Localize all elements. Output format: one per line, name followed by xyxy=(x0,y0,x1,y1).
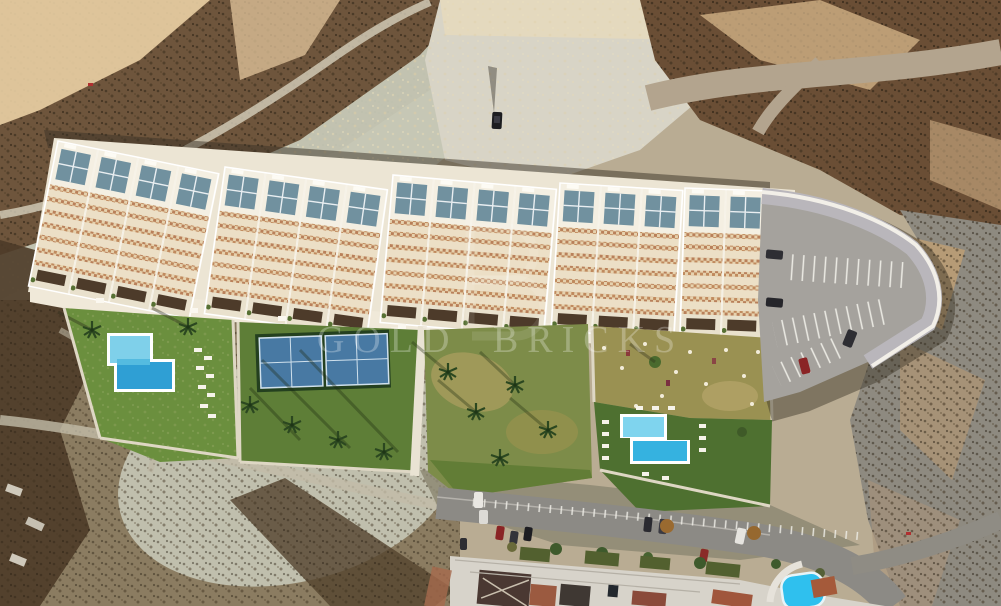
block-2 xyxy=(204,167,387,336)
block-4 xyxy=(551,183,683,338)
block-5 xyxy=(680,188,767,339)
aerial-render: GOLD BRICKS xyxy=(0,0,1001,606)
block-1 xyxy=(28,141,218,319)
block-3 xyxy=(380,175,556,337)
padel-courts xyxy=(255,330,391,393)
garden-east-upper xyxy=(592,326,772,420)
garden-central xyxy=(412,324,592,497)
garden-padel xyxy=(238,322,427,476)
